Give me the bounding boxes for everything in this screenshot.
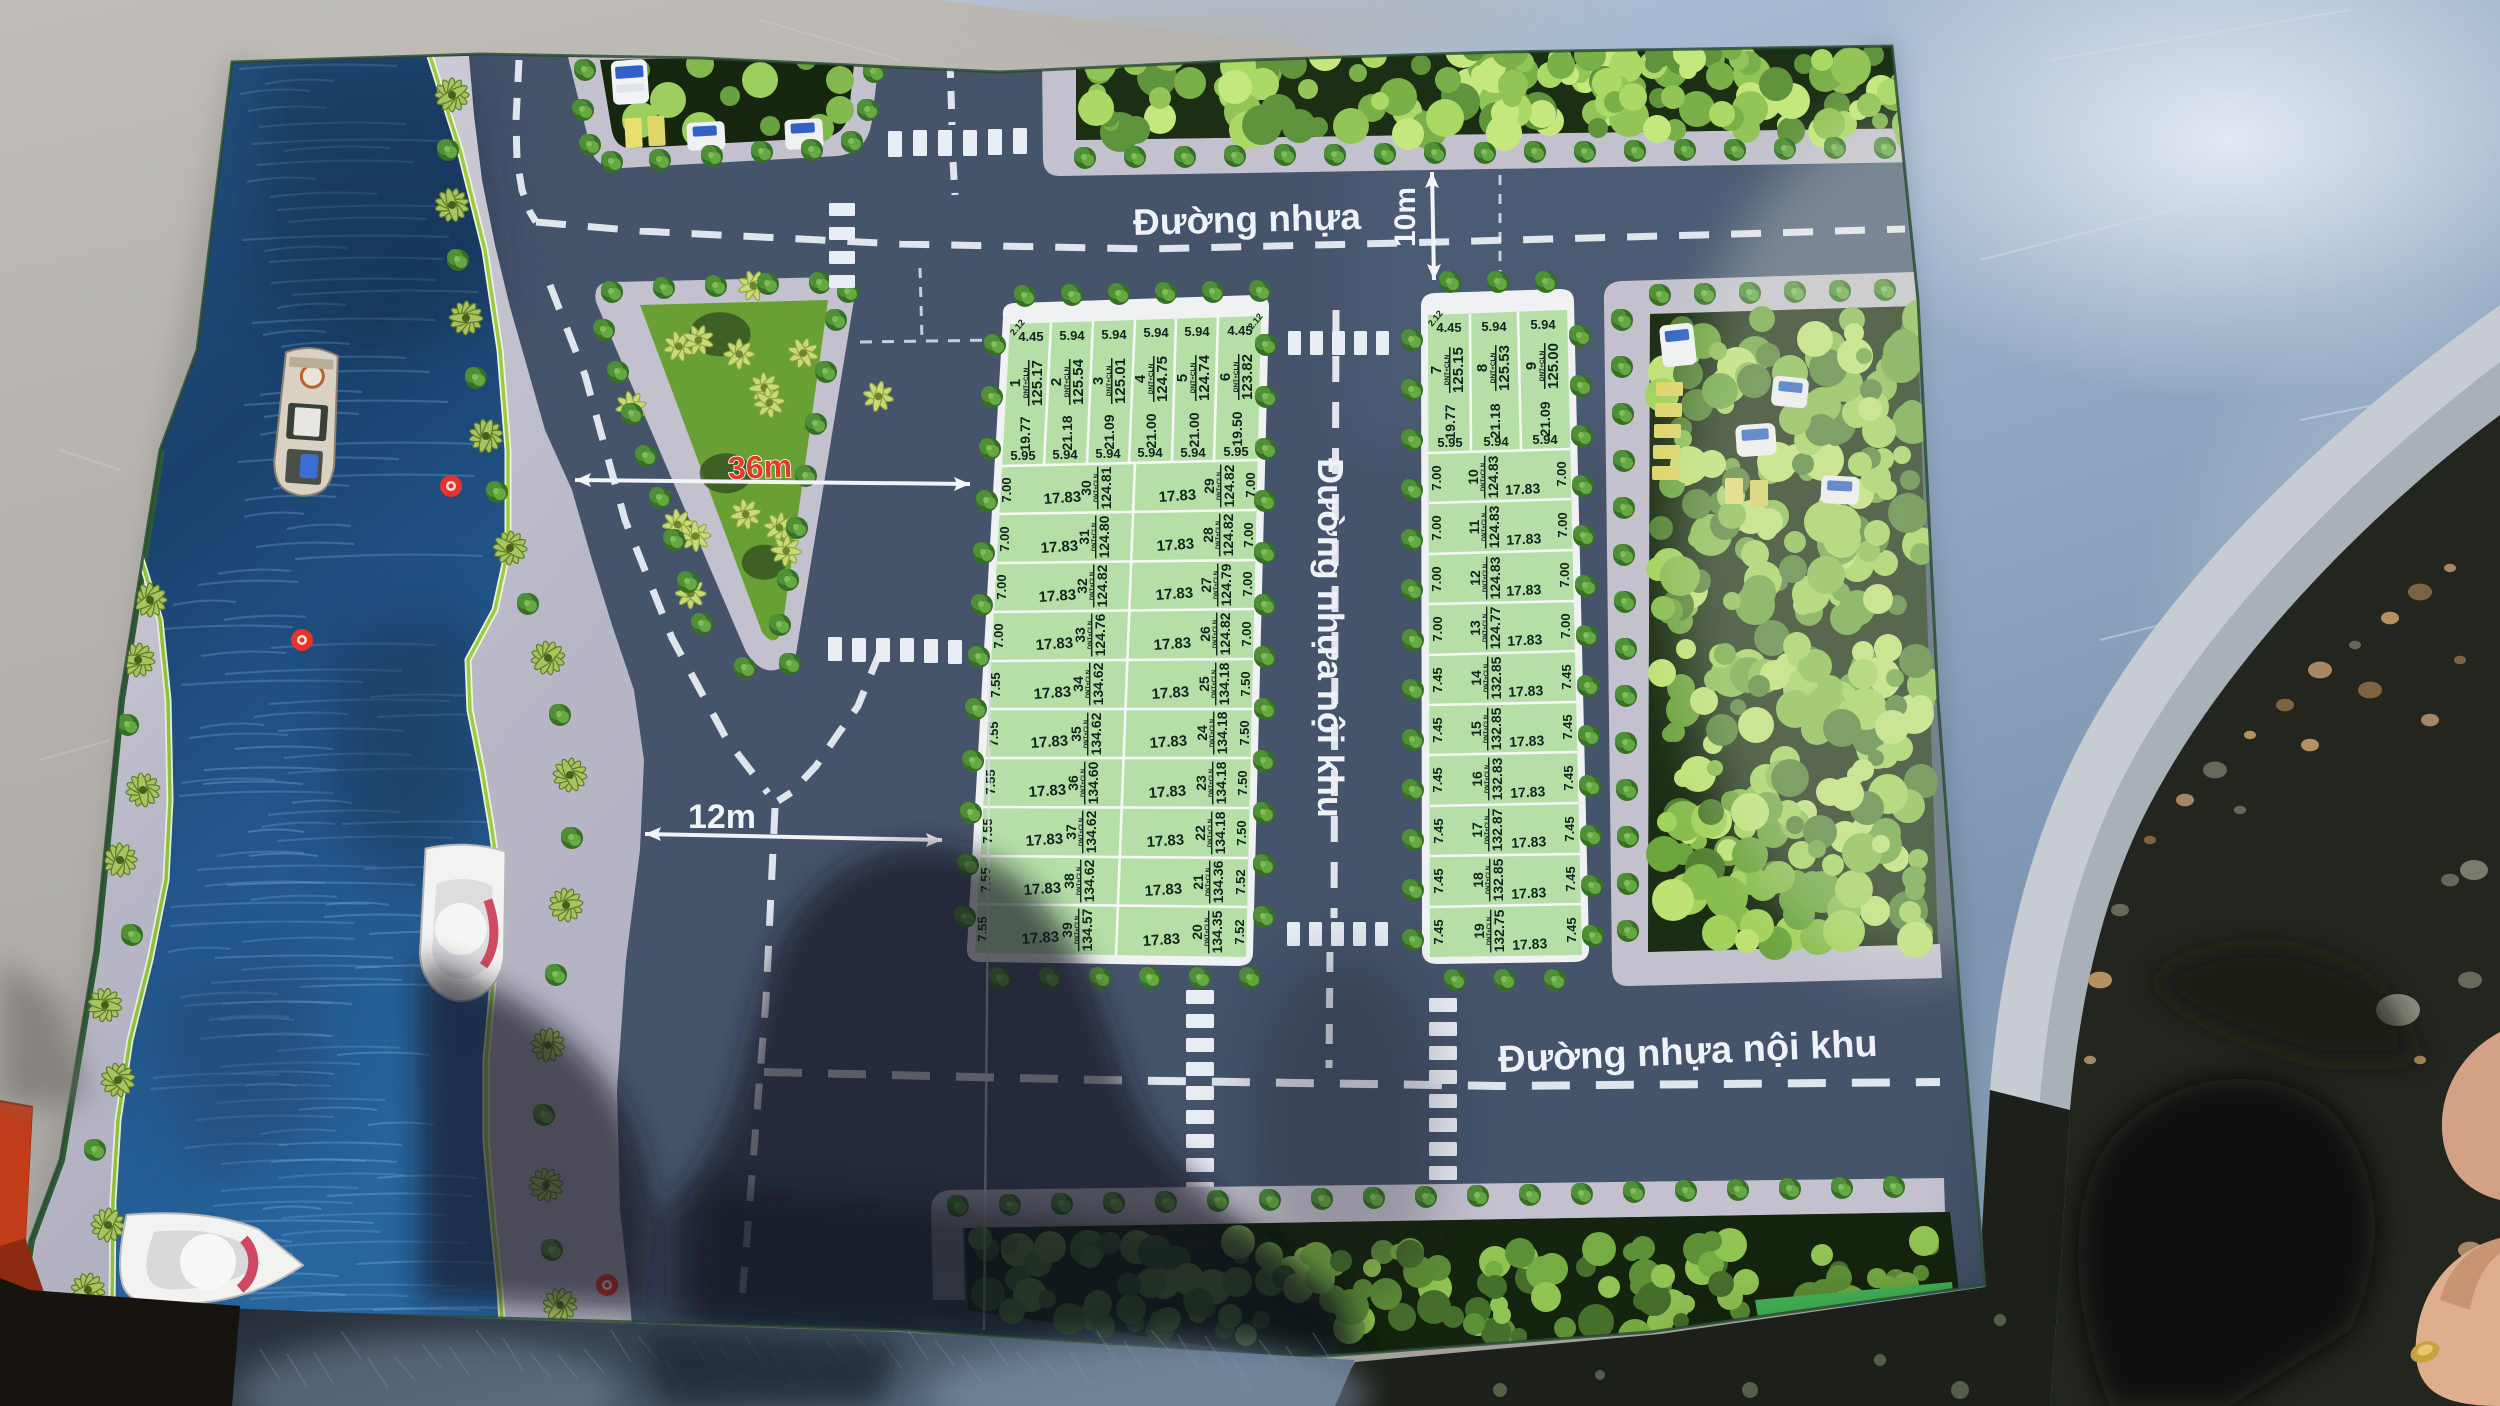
svg-text:19.77: 19.77 — [1442, 404, 1458, 439]
svg-text:17.83: 17.83 — [1149, 732, 1188, 752]
svg-text:17.83: 17.83 — [1511, 833, 1547, 851]
svg-text:Đường nhựa: Đường nhựa — [1132, 196, 1361, 243]
svg-text:7.00: 7.00 — [1239, 621, 1254, 646]
svg-text:17.83: 17.83 — [1146, 831, 1185, 851]
svg-text:132.87: 132.87 — [1489, 808, 1505, 851]
svg-text:36: 36 — [1065, 775, 1081, 791]
svg-text:134.18: 134.18 — [1216, 662, 1232, 705]
svg-text:22: 22 — [1192, 825, 1208, 841]
svg-text:11: 11 — [1466, 519, 1482, 534]
svg-text:134.18: 134.18 — [1212, 811, 1228, 854]
svg-text:134.18: 134.18 — [1213, 761, 1229, 804]
svg-text:5.94: 5.94 — [1143, 325, 1169, 340]
svg-text:36m: 36m — [727, 448, 792, 486]
svg-text:17.83: 17.83 — [1040, 537, 1079, 557]
svg-text:125.17: 125.17 — [1029, 360, 1046, 406]
svg-text:19.50: 19.50 — [1229, 411, 1245, 446]
svg-text:125.53: 125.53 — [1496, 345, 1513, 391]
svg-text:7.00: 7.00 — [1240, 571, 1255, 596]
svg-text:28: 28 — [1200, 527, 1216, 543]
svg-text:12: 12 — [1467, 570, 1483, 586]
svg-text:124.82: 124.82 — [1217, 612, 1233, 655]
svg-text:10: 10 — [1465, 469, 1481, 485]
svg-text:7.50: 7.50 — [1237, 720, 1252, 745]
svg-text:21: 21 — [1190, 874, 1206, 890]
svg-text:7.45: 7.45 — [1562, 816, 1577, 841]
svg-text:7.50: 7.50 — [1235, 770, 1250, 795]
svg-text:17.83: 17.83 — [1506, 530, 1542, 548]
svg-text:7.45: 7.45 — [1560, 714, 1575, 739]
svg-text:17.83: 17.83 — [1512, 935, 1548, 953]
svg-text:125.00: 125.00 — [1545, 343, 1562, 389]
svg-text:9: 9 — [1523, 362, 1540, 370]
svg-text:31: 31 — [1076, 529, 1092, 545]
svg-text:8: 8 — [1474, 364, 1491, 372]
svg-text:5.94: 5.94 — [1059, 328, 1085, 343]
svg-text:7.45: 7.45 — [1431, 818, 1446, 843]
svg-text:7.52: 7.52 — [1233, 869, 1248, 894]
svg-text:5.94: 5.94 — [1184, 324, 1210, 339]
svg-text:10m: 10m — [1389, 187, 1422, 247]
svg-text:7.00: 7.00 — [994, 574, 1009, 599]
svg-text:7.45: 7.45 — [1561, 765, 1576, 790]
svg-text:33: 33 — [1072, 627, 1088, 643]
svg-text:4.45: 4.45 — [1018, 329, 1043, 344]
svg-text:17.83: 17.83 — [1142, 930, 1181, 950]
svg-text:7.55: 7.55 — [983, 769, 998, 794]
svg-text:124.75: 124.75 — [1154, 356, 1171, 402]
svg-text:134.35: 134.35 — [1209, 910, 1225, 953]
svg-text:7.45: 7.45 — [1430, 717, 1445, 742]
svg-text:5.94: 5.94 — [1530, 317, 1556, 332]
svg-text:17.83: 17.83 — [1151, 683, 1190, 703]
svg-text:17.83: 17.83 — [1148, 782, 1187, 802]
svg-text:7.50: 7.50 — [1234, 820, 1249, 845]
svg-text:17.83: 17.83 — [1153, 634, 1192, 654]
svg-text:125.01: 125.01 — [1112, 358, 1129, 404]
svg-text:134.62: 134.62 — [1083, 810, 1099, 853]
svg-text:17.83: 17.83 — [1158, 486, 1197, 506]
svg-text:38: 38 — [1061, 873, 1077, 889]
svg-text:134.62: 134.62 — [1090, 662, 1106, 705]
svg-text:124.83: 124.83 — [1486, 505, 1502, 548]
svg-text:24: 24 — [1194, 725, 1210, 741]
svg-text:32: 32 — [1074, 578, 1090, 594]
svg-text:17: 17 — [1469, 822, 1485, 838]
svg-text:7.50: 7.50 — [1238, 671, 1253, 696]
svg-text:132.85: 132.85 — [1490, 858, 1506, 901]
svg-text:134.18: 134.18 — [1214, 711, 1230, 754]
svg-text:7.00: 7.00 — [1241, 522, 1256, 547]
svg-text:16: 16 — [1469, 771, 1485, 787]
svg-text:29: 29 — [1201, 478, 1217, 494]
svg-text:15: 15 — [1468, 721, 1484, 737]
svg-text:1: 1 — [1007, 379, 1024, 387]
svg-text:19.77: 19.77 — [1017, 416, 1033, 451]
svg-text:17.83: 17.83 — [1038, 586, 1077, 606]
svg-text:134.62: 134.62 — [1088, 712, 1104, 755]
svg-text:23: 23 — [1193, 775, 1209, 791]
svg-text:17.83: 17.83 — [1030, 732, 1069, 752]
svg-text:17.83: 17.83 — [1155, 584, 1194, 604]
svg-text:7.00: 7.00 — [1557, 562, 1572, 587]
svg-text:7.00: 7.00 — [1429, 566, 1444, 591]
svg-text:124.76: 124.76 — [1092, 613, 1108, 656]
svg-text:27: 27 — [1198, 577, 1214, 593]
svg-text:Đường nhựa nội khu: Đường nhựa nội khu — [1310, 458, 1351, 818]
svg-text:17.83: 17.83 — [1156, 535, 1195, 555]
svg-text:7.45: 7.45 — [1430, 667, 1445, 692]
svg-text:17.83: 17.83 — [1043, 488, 1082, 508]
svg-text:25: 25 — [1196, 676, 1212, 692]
svg-text:132.85: 132.85 — [1488, 707, 1504, 750]
svg-text:17.83: 17.83 — [1507, 631, 1543, 649]
svg-text:7.45: 7.45 — [1563, 866, 1578, 891]
svg-text:4: 4 — [1132, 374, 1149, 383]
svg-text:7.00: 7.00 — [1558, 613, 1573, 638]
svg-text:124.81: 124.81 — [1098, 466, 1114, 509]
svg-text:7.00: 7.00 — [1429, 465, 1444, 490]
svg-text:124.82: 124.82 — [1221, 464, 1237, 507]
svg-text:17.83: 17.83 — [1144, 880, 1183, 900]
svg-text:5.94: 5.94 — [1481, 319, 1507, 334]
svg-text:7.00: 7.00 — [997, 526, 1012, 551]
svg-text:21.09: 21.09 — [1537, 401, 1553, 436]
svg-text:124.83: 124.83 — [1487, 556, 1503, 599]
svg-text:124.74: 124.74 — [1196, 354, 1213, 401]
svg-text:7.45: 7.45 — [1559, 664, 1574, 689]
svg-text:7.45: 7.45 — [1430, 767, 1445, 792]
svg-text:7.45: 7.45 — [1431, 868, 1446, 893]
svg-text:132.85: 132.85 — [1488, 656, 1504, 699]
svg-text:7.00: 7.00 — [1554, 461, 1569, 486]
svg-text:7.52: 7.52 — [1232, 919, 1247, 944]
svg-text:17.83: 17.83 — [1509, 732, 1545, 750]
svg-text:37: 37 — [1063, 824, 1079, 840]
svg-text:5.94: 5.94 — [1101, 327, 1127, 342]
svg-text:12m: 12m — [688, 798, 756, 836]
svg-text:132.83: 132.83 — [1489, 757, 1505, 800]
svg-text:7.00: 7.00 — [1430, 616, 1445, 641]
svg-text:19: 19 — [1471, 923, 1487, 939]
svg-text:3: 3 — [1090, 377, 1107, 385]
svg-text:6: 6 — [1217, 373, 1234, 381]
svg-text:14: 14 — [1468, 670, 1484, 686]
svg-text:7.45: 7.45 — [1431, 919, 1446, 944]
svg-text:34: 34 — [1070, 676, 1086, 692]
svg-text:7.00: 7.00 — [1555, 512, 1570, 537]
svg-text:123.82: 123.82 — [1239, 354, 1256, 400]
svg-text:4.45: 4.45 — [1436, 320, 1461, 335]
svg-text:17.83: 17.83 — [1508, 682, 1544, 700]
svg-text:132.75: 132.75 — [1491, 909, 1507, 952]
svg-text:21.00: 21.00 — [1186, 412, 1202, 447]
svg-text:124.80: 124.80 — [1096, 515, 1112, 558]
svg-text:17.83: 17.83 — [1506, 581, 1542, 599]
svg-text:124.77: 124.77 — [1487, 606, 1503, 649]
svg-text:21.18: 21.18 — [1059, 415, 1075, 450]
svg-text:134.62: 134.62 — [1081, 859, 1097, 902]
svg-text:17.83: 17.83 — [1028, 781, 1067, 801]
svg-text:125.54: 125.54 — [1070, 358, 1087, 405]
svg-text:2: 2 — [1048, 378, 1065, 386]
svg-text:125.15: 125.15 — [1450, 347, 1467, 393]
svg-text:13: 13 — [1467, 620, 1483, 636]
svg-text:21.18: 21.18 — [1487, 403, 1503, 438]
svg-text:21.00: 21.00 — [1143, 413, 1159, 448]
svg-text:134.60: 134.60 — [1085, 761, 1101, 804]
svg-text:7.45: 7.45 — [1564, 917, 1579, 942]
svg-text:7.00: 7.00 — [991, 623, 1006, 648]
svg-text:124.82: 124.82 — [1094, 564, 1110, 607]
svg-text:17.83: 17.83 — [1035, 634, 1074, 654]
svg-text:134.36: 134.36 — [1210, 860, 1226, 903]
svg-text:5: 5 — [1174, 374, 1191, 382]
svg-text:17.83: 17.83 — [1505, 480, 1541, 498]
svg-text:134.57: 134.57 — [1079, 908, 1095, 951]
svg-text:17.83: 17.83 — [1511, 884, 1547, 902]
svg-text:21.09: 21.09 — [1101, 414, 1117, 449]
svg-text:18: 18 — [1470, 872, 1486, 888]
svg-text:124.79: 124.79 — [1218, 563, 1234, 606]
svg-text:20: 20 — [1189, 924, 1205, 940]
svg-text:17.83: 17.83 — [1025, 830, 1064, 850]
svg-text:124.83: 124.83 — [1485, 455, 1501, 498]
svg-text:35: 35 — [1068, 726, 1084, 742]
svg-text:124.82: 124.82 — [1220, 513, 1236, 556]
svg-text:7.00: 7.00 — [1429, 515, 1444, 540]
svg-text:7: 7 — [1428, 366, 1445, 374]
svg-text:26: 26 — [1197, 626, 1213, 642]
svg-text:17.83: 17.83 — [1510, 783, 1546, 801]
svg-text:7.00: 7.00 — [999, 477, 1014, 502]
svg-text:17.83: 17.83 — [1033, 683, 1072, 703]
